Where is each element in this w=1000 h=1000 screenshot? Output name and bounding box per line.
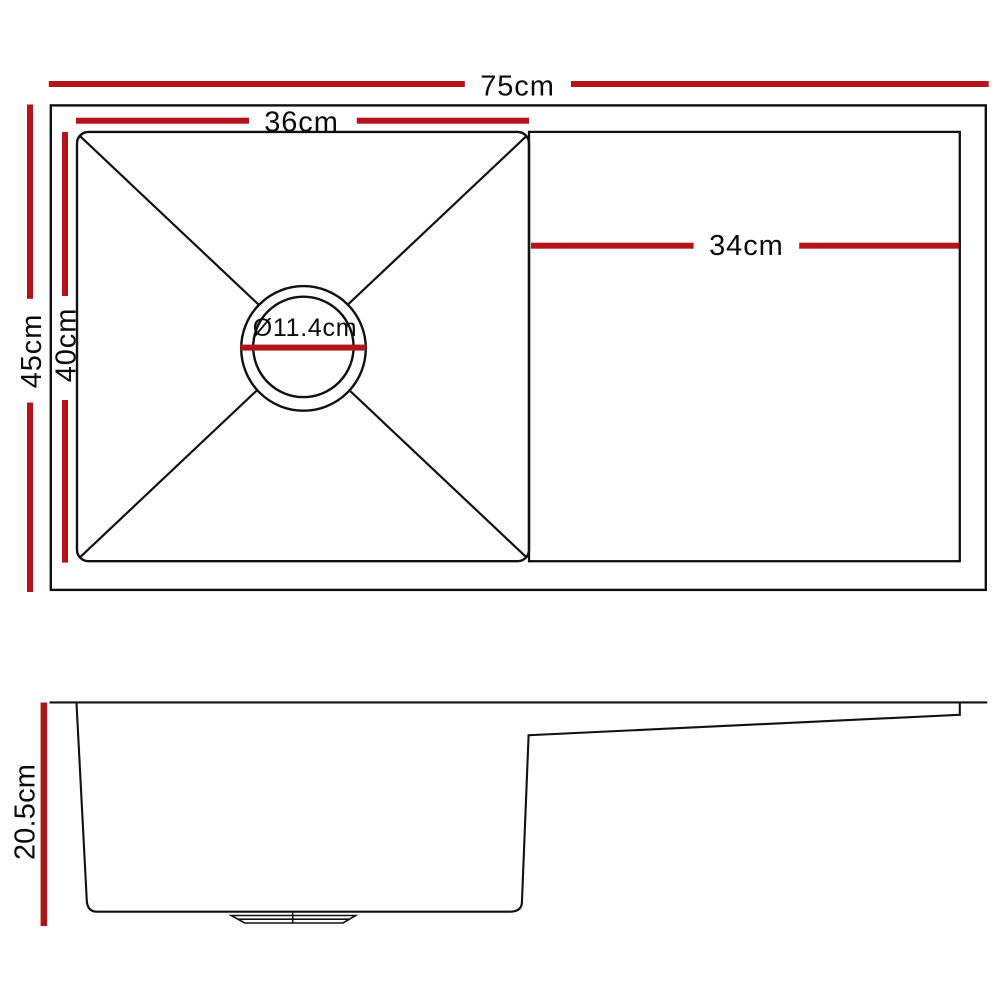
svg-text:45cm: 45cm (16, 314, 48, 389)
svg-text:Ø11.4cm: Ø11.4cm (253, 314, 357, 342)
svg-text:36cm: 36cm (264, 107, 339, 139)
svg-text:20.5cm: 20.5cm (10, 764, 42, 860)
svg-text:75cm: 75cm (480, 71, 555, 103)
svg-text:40cm: 40cm (51, 308, 83, 383)
svg-text:34cm: 34cm (709, 230, 784, 262)
